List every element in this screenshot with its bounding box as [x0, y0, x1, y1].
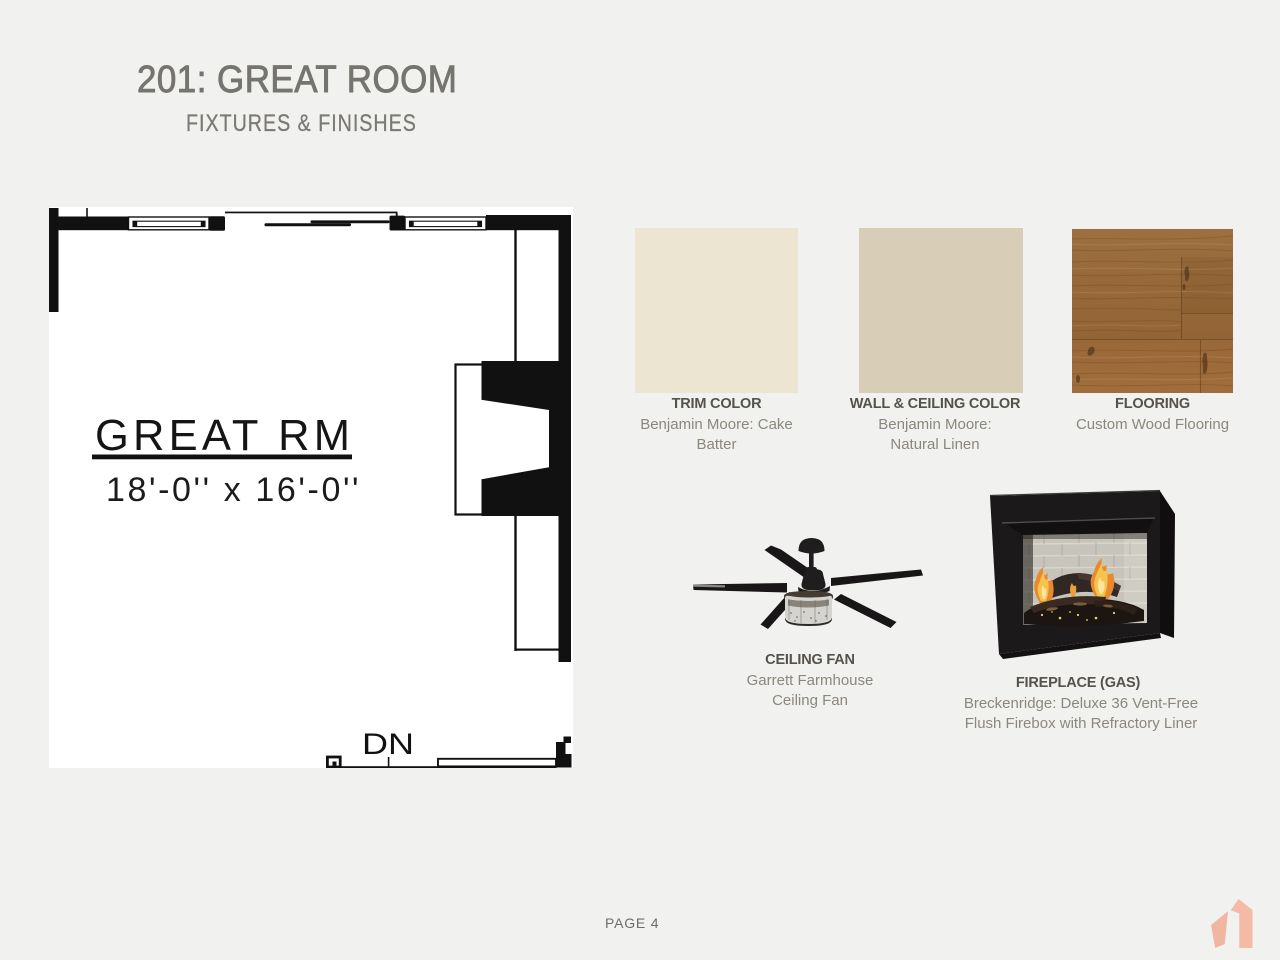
svg-text:DN: DN [362, 728, 414, 761]
svg-text:18'-0'' x 16'-0'': 18'-0'' x 16'-0'' [106, 471, 361, 509]
svg-text:GREAT RM: GREAT RM [95, 412, 354, 460]
